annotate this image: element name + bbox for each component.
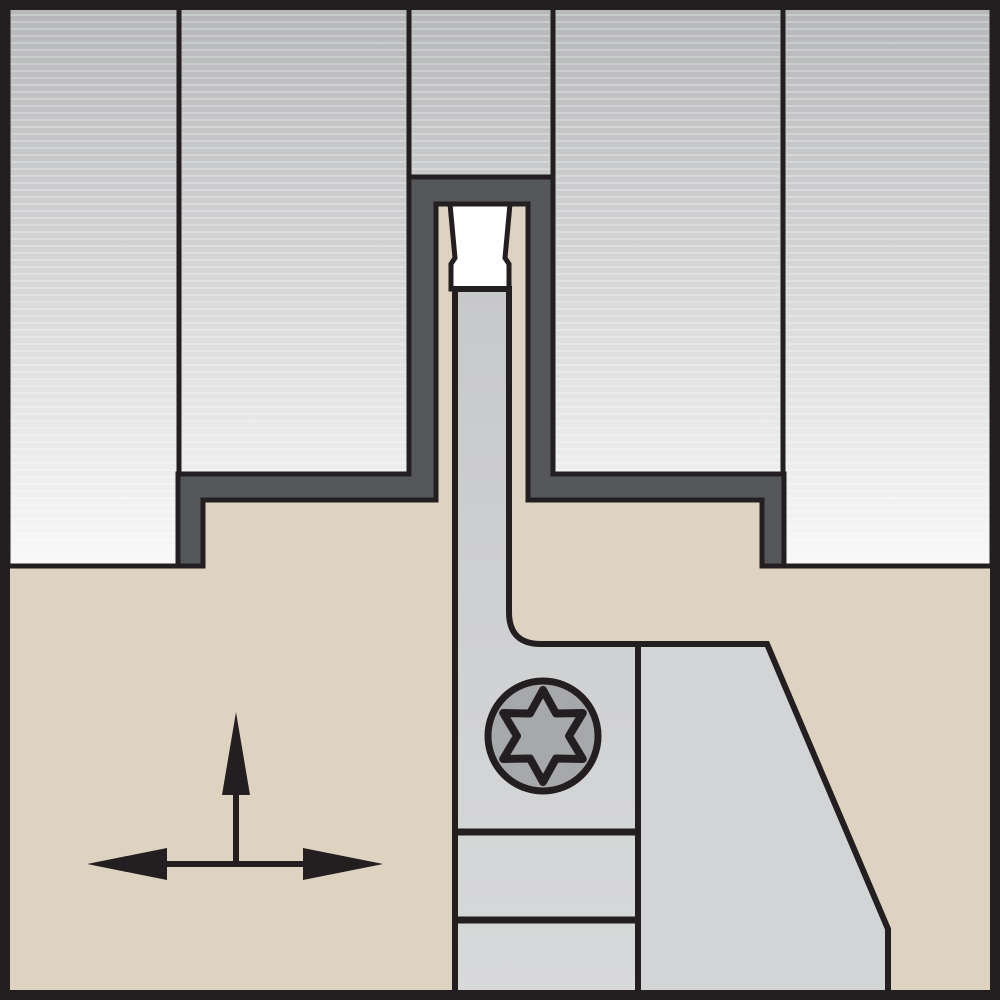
workpiece-panel-far-right-shading [786,5,989,563]
diagram-page [0,0,1000,1000]
grooving-insert [450,204,510,289]
workpiece-panel-left-shading [182,5,406,472]
tool-holder-diagram [0,0,1000,1000]
horizontal-arrow-shaft [162,861,308,867]
workpiece-panel-right-shading [556,5,780,472]
vertical-arrow-stem [233,793,239,866]
workpiece-panel-center-shading [412,5,550,175]
workpiece-panel-far-left-shading [11,5,176,563]
torx-clamp-screw [488,681,598,791]
